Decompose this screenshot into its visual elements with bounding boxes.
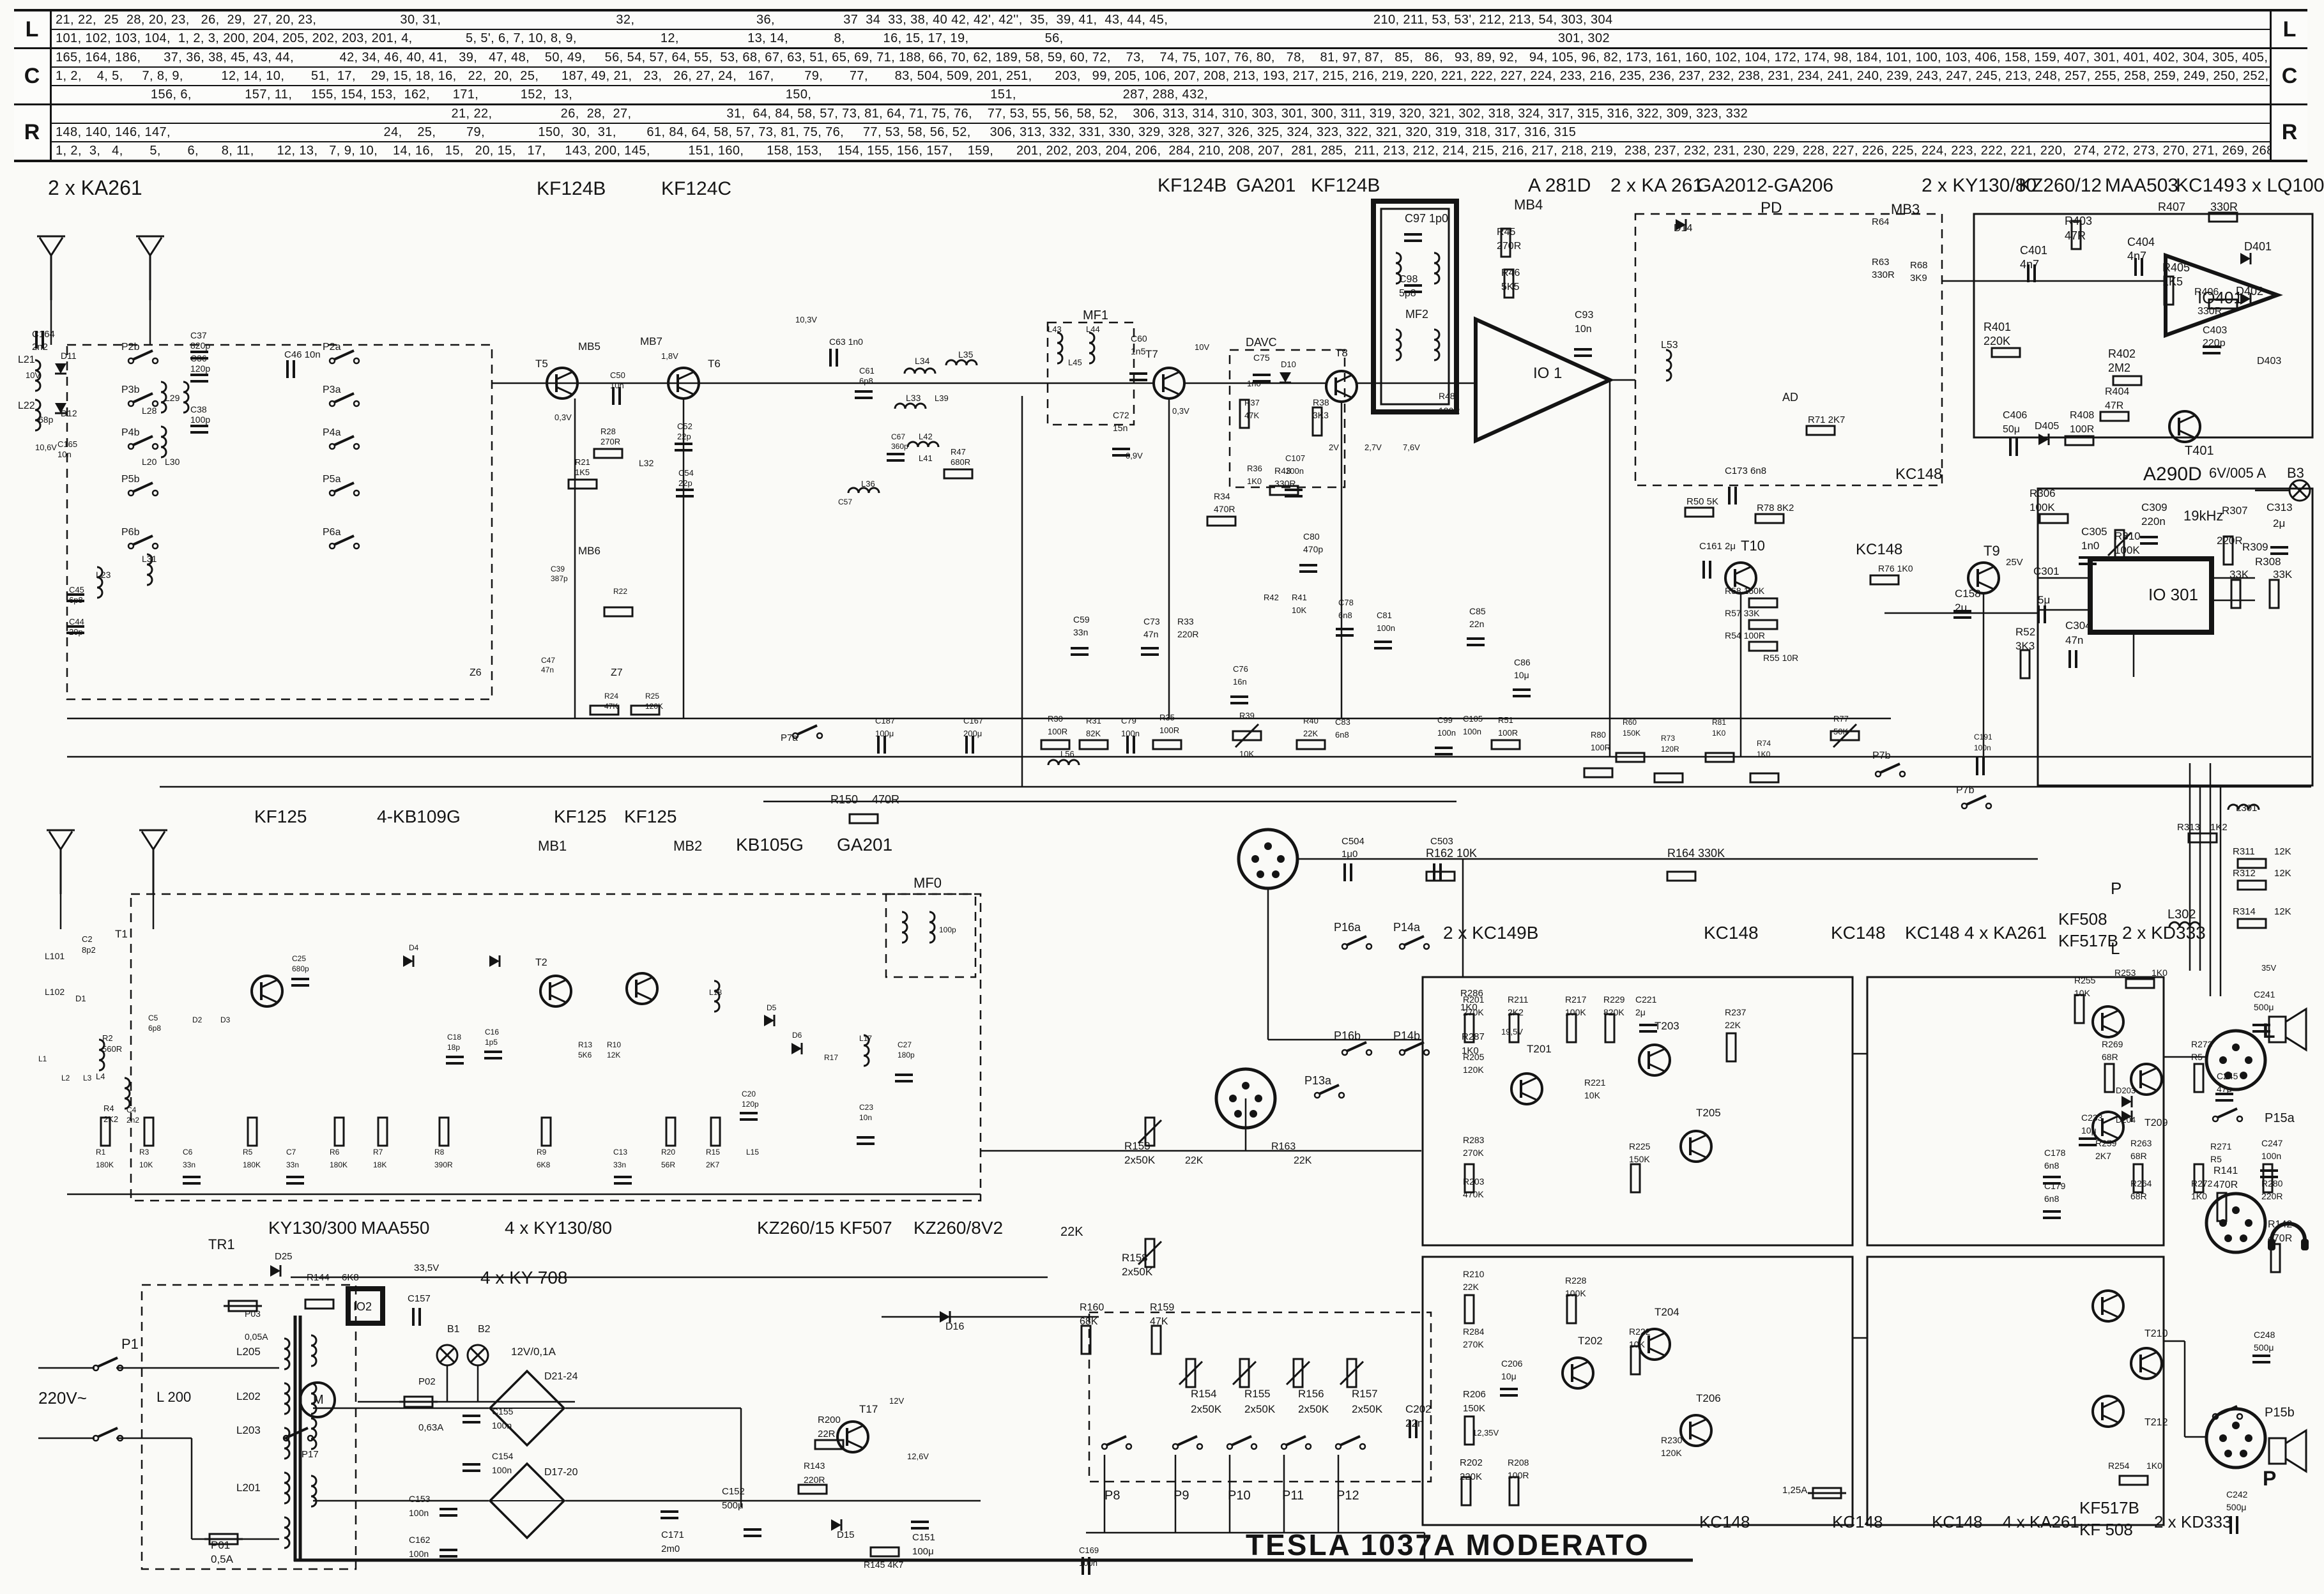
antenna-icon [61,831,72,849]
component-label: R255 [2074,975,2096,985]
component-label: L202 [236,1390,261,1402]
component-label: 100R [1159,725,1179,735]
component-label: 0,9V [1126,451,1143,460]
component-label: R205 [1463,1052,1485,1062]
component-label: C38 [190,404,207,414]
switch-lever [1232,1436,1251,1445]
component-label: 22R [818,1429,836,1439]
component-label: P15a [2265,1111,2295,1125]
component-label: R81 [1712,718,1726,727]
component-label: L1 [38,1054,47,1063]
component-label: 12K [2274,868,2291,879]
switch-lever [1347,936,1366,945]
component-label: 1K0 [1247,476,1262,486]
component-label: C301 [2033,565,2060,577]
component-label: 1μ0 [1342,849,1357,860]
transistor-collector [1649,1049,1665,1056]
component-label: L22 [18,400,35,411]
component-label: P01 [211,1539,230,1551]
component-label: C167 [963,716,983,725]
component-label: R313 [2177,822,2200,833]
component-label: 220n [2141,515,2166,528]
transistor-collector [1978,566,1994,574]
component-label: C20 [742,1089,756,1098]
component-label: KF124C [661,178,731,199]
switch-contact [1360,1444,1365,1449]
component-label: 10μ [1501,1371,1517,1381]
strip-group-C: C165, 164, 186, 37, 36, 38, 45, 43, 44, … [14,47,2307,103]
transistor-collector [2102,1010,2119,1018]
component-label: KC148 [1704,923,1759,943]
component-label: 10,6V [35,443,57,452]
component-label: R156 [1298,1388,1324,1400]
component-label: L3 [83,1074,92,1082]
strip-number-line: 148, 140, 146, 147, 24, 25, 79, 150, 30,… [52,123,2270,141]
transistor-collector [2141,1352,2157,1360]
component-label: C79 [1121,716,1136,725]
switch-lever [1177,1436,1197,1445]
din-socket [2206,1194,2265,1252]
transistor-emitter [2102,1026,2119,1033]
component-label: 100R [2070,424,2094,435]
component-label: MB6 [578,545,600,557]
component-label: 330R [2210,201,2238,213]
component-label: 10n [1575,324,1592,335]
component-label: C157 [408,1293,431,1304]
component-label: L53 [1661,340,1678,351]
component-label: L203 [236,1424,261,1436]
resistor-symbol [1750,773,1778,782]
din-socket-pin [2240,1234,2247,1242]
component-label: D16 [945,1321,964,1332]
component-label: KF125 [554,807,607,826]
component-label: L101 [45,951,65,961]
resistor-symbol [305,1300,333,1309]
component-label: 50μ [2003,424,2020,435]
transistor-collector [1690,1135,1707,1142]
component-label: C247 [2261,1138,2283,1148]
antenna-icon [150,238,162,255]
component-label: L201 [236,1482,261,1494]
diode-symbol [2038,434,2049,445]
component-label: R201 [1463,994,1485,1005]
resistor-symbol [944,469,972,478]
component-label: C6 [183,1148,193,1157]
strip-lines: 165, 164, 186, 37, 36, 38, 45, 43, 44, 4… [52,49,2270,103]
component-label: R77 [1833,714,1849,724]
component-label: 100p [190,414,210,425]
component-label: 100n [492,1465,512,1475]
component-label: R208 [1508,1457,1529,1468]
component-label: R51 [1498,715,1513,725]
component-label: 100K [1565,1288,1586,1298]
component-label: 200μ [963,729,982,738]
component-label: P2b [121,342,140,353]
resistor-symbol [1807,426,1835,435]
component-label: 1K0 [1712,729,1726,738]
component-label: 22K [1294,1155,1312,1166]
module-outline-dashed [1048,323,1134,425]
potentiometer-arrow [1233,1362,1256,1385]
component-label: 22K [1303,729,1318,738]
diode-symbol [764,1015,774,1026]
component-label: L302 [2167,907,2196,922]
component-label: P6a [323,527,341,538]
switch-lever [1340,1436,1360,1445]
component-label: C248 [2254,1330,2275,1340]
resistor-symbol [144,1118,153,1146]
component-label: 12V [889,1396,904,1406]
component-label: 6V/005 A [2209,465,2267,481]
component-label: 270K [1463,1148,1484,1158]
component-label: L36 [861,479,875,489]
component-label: 22n [1405,1417,1423,1429]
component-label: 100n [1079,1558,1097,1568]
component-label: T201 [1527,1043,1552,1055]
resistor-symbol [569,480,597,489]
component-label: MF2 [1405,308,1428,321]
component-label: 150K [1623,729,1640,738]
resistor-symbol [1297,740,1325,749]
component-label: L 200 [157,1389,191,1405]
component-label: 100K [2030,501,2055,513]
component-label: C97 1p0 [1405,212,1448,225]
component-label: P11 [1282,1489,1304,1503]
resistor-symbol [2105,1064,2114,1092]
component-label: 560R [102,1044,122,1054]
component-label: AD [1782,391,1798,404]
switch-contact [1339,1093,1344,1098]
component-label: C162 [409,1535,431,1545]
component-label: MB5 [578,340,600,353]
component-label: C233 [2081,1112,2103,1123]
component-label: C401 [2020,244,2047,257]
diode-symbol [489,955,500,967]
component-label: 220K [1984,335,2010,347]
component-label: D1 [75,994,86,1003]
component-label: 150K [1629,1154,1650,1164]
transistor-collector [1572,1362,1589,1369]
component-label: C83 [1335,717,1350,727]
component-label: 8p2 [82,945,96,955]
component-label: 100n [409,1508,429,1518]
component-label: R141 [2213,1165,2238,1176]
strip-letter-L: L [14,11,52,47]
inductor-symbol [946,360,977,365]
component-label: 68p [38,414,54,425]
component-label: R225 [1629,1141,1651,1151]
transistor-emitter [2102,1310,2119,1317]
component-label: C187 [875,716,895,725]
switch-lever [1404,1042,1424,1051]
component-label: D403 [2257,356,2281,367]
component-label: KF124B [1311,175,1380,196]
component-label: R237 [1725,1007,1747,1017]
component-label: 12K [2274,846,2291,857]
component-label: C81 [1377,611,1392,620]
component-label: 360p [891,442,908,451]
component-label: 0,3V [554,413,572,422]
component-label: 22K [1185,1155,1204,1166]
component-label: C80 [1303,531,1320,542]
component-label: R24 [604,692,618,701]
component-label: KB105G [736,835,804,854]
component-label: C39 [551,565,565,573]
component-label: C107 [1285,453,1305,463]
component-label: 3K3 [1313,410,1329,420]
component-label: 100R [1498,728,1518,738]
transistor-collector [1163,372,1180,379]
component-label: 2M2 [2108,361,2130,374]
component-label: 180K [330,1160,348,1169]
component-label: R150 [830,793,858,806]
switch-contact [2237,1116,2242,1121]
component-label: R308 [2255,556,2281,568]
component-label: C304 [2065,619,2091,632]
component-label: B1 [447,1324,460,1335]
strip-number-line: 21, 22, 26, 28, 27, 31, 64, 84, 58, 57, … [52,105,2270,123]
component-label: L33 [906,393,921,403]
component-label: R202 [1460,1457,1483,1468]
component-label: R34 [1214,491,1230,501]
component-label: P14b [1393,1029,1420,1042]
component-label: 2,7V [1365,443,1382,452]
component-label: R221 [1584,1077,1606,1088]
component-label: Z7 [611,667,623,678]
component-label: L32 [639,458,654,468]
transistor-collector [556,372,573,379]
component-label: 220R [804,1475,825,1485]
component-label: 19kHz [2183,508,2223,524]
component-label: 680p [292,964,309,973]
strip-letter-R: R [14,105,52,160]
switch-lever [98,1358,118,1367]
strip-number-line: 1, 2, 4, 5, 7, 8, 9, 12, 14, 10, 51, 17,… [52,66,2270,85]
component-label: 100n [1463,727,1481,736]
component-label: 10,3V [795,315,817,324]
component-label: C158 [1955,588,1981,600]
component-label: T205 [1696,1107,1721,1119]
component-label: 33n [286,1160,299,1169]
module-outline-dashed [67,345,492,699]
transistor-emitter [678,387,694,395]
component-label: 4 x KA261 [2003,1512,2079,1531]
component-label: 330R [1274,478,1296,489]
switch-contact [1424,944,1429,949]
component-label: 2 x KD333 [2122,923,2206,943]
component-label: T6 [708,358,721,370]
component-label: R160 [1080,1302,1104,1313]
component-label: R42 [1264,593,1279,602]
transistor-collector [261,980,278,987]
resistor-symbol [2100,412,2129,421]
component-label: R162 10K [1426,847,1477,860]
component-label: 2K7 [2095,1151,2111,1161]
component-label: C202 [1405,1403,1432,1415]
component-label: L17 [859,1034,872,1043]
component-label: 120p [742,1100,759,1109]
component-label: C60 [1131,333,1147,344]
component-label: 33K [2273,568,2293,581]
din-socket-pin [1251,855,1259,863]
switch-contact [1197,1444,1202,1449]
transistor-collector [2179,415,2196,423]
component-label: 500μ [2254,1342,2274,1353]
component-label: R311 [2233,846,2255,857]
component-label: P4a [323,427,341,438]
component-label: MB3 [1891,201,1920,217]
component-label: 2x50K [1298,1403,1329,1415]
transistor-emitter [261,995,278,1003]
component-label: KZ260/8V2 [914,1218,1003,1238]
component-label: MF0 [914,875,942,891]
component-label: MAA503 [2105,175,2178,196]
component-label: 22p [677,432,691,441]
component-label: 10n [859,1113,872,1122]
component-label: KF 508 [2079,1520,2133,1539]
component-label: R25 [645,692,659,701]
component-label: R159 [1150,1302,1174,1313]
component-label: D12 [61,408,77,418]
component-label: IO 1 [1533,365,1562,382]
component-label: C36 [190,353,207,363]
component-label: R21 [575,457,590,467]
component-label: 18K [373,1160,386,1169]
component-label: C155 [492,1406,514,1416]
component-label: R145 4K7 [864,1560,903,1570]
potentiometer-arrow [1340,1362,1363,1385]
strip-number-line: 165, 164, 186, 37, 36, 38, 45, 43, 44, 4… [52,49,2270,66]
switch-contact [1424,1050,1429,1055]
component-label: P7a [781,732,798,743]
component-label: R310 [2114,530,2141,542]
headphones-symbol [2301,1239,2309,1250]
resistor-symbol [542,1118,551,1146]
component-label: R259 [2095,1138,2117,1148]
component-label: 4-KB109G [377,807,461,826]
component-label: C18 [447,1033,461,1042]
component-label: D204 [2116,1115,2136,1125]
component-label: D402 [2236,285,2263,298]
component-label: C67 [891,432,905,441]
component-label: L301 [2236,803,2257,814]
component-label: KF508 [2058,909,2107,929]
component-label: 33,5V [414,1263,439,1273]
component-label: L2 [61,1074,70,1082]
component-label: C37 [190,330,207,340]
transistor-collector [550,980,567,987]
component-label: 100n [409,1549,429,1559]
din-socket-pin [2240,1450,2247,1457]
component-label: 25V [2006,557,2023,568]
diode-symbol [2240,253,2251,264]
component-label: L102 [45,987,65,997]
component-label: R37 [1244,398,1260,407]
resistor-symbol [2113,376,2141,385]
din-socket-pin [1234,1110,1242,1118]
component-label: T7 [1145,348,1158,360]
component-label: R40 [1303,716,1319,725]
transistor-emitter [1163,387,1180,395]
component-label: 100n [1974,743,1991,752]
component-label: R158 [1122,1252,1148,1264]
din-socket-pin [1277,855,1285,863]
component-label: GA201 [1697,175,1756,196]
strip-number-line: 21, 22, 25 28, 20, 23, 26, 29, 27, 20, 2… [52,11,2270,29]
component-label: 5μ [2038,594,2050,606]
component-label: 12K [607,1051,620,1059]
component-label: R78 8K2 [1757,503,1794,513]
component-label: R407 [2158,201,2185,213]
component-label: C406 [2003,410,2027,421]
component-label: 120K [1661,1448,1682,1458]
inductor-symbol [311,1418,316,1449]
component-label: C5 [148,1013,158,1022]
component-label: R228 [1565,1275,1587,1286]
component-label: Z6 [470,667,482,678]
diode-symbol [403,955,413,967]
din-socket-pin [2224,1450,2232,1457]
inductor-symbol [1396,330,1401,360]
inductor-symbol [311,1335,316,1366]
component-label: T203 [1655,1020,1679,1032]
inductor-symbol [905,368,935,374]
component-label: D6 [792,1031,802,1040]
component-label: M [313,1393,324,1407]
component-label: R46 [1501,268,1520,278]
module-outline [1423,977,1853,1245]
component-label: 220V~ [38,1388,87,1408]
strip-lines: 21, 22, 26, 28, 27, 31, 64, 84, 58, 57, … [52,105,2270,160]
component-label: KY130/300 [268,1218,357,1238]
component-label: 330R [2198,306,2222,317]
schematic-canvas: 2 x KA261KF124BKF124CKF124BGA201KF124BA … [0,0,2324,1594]
resistor-symbol [1749,620,1777,629]
component-label: 220R [1177,629,1198,639]
component-label: R406 [2194,287,2219,298]
component-label: 12,35V [1472,1428,1499,1438]
diode-symbol [1280,372,1291,383]
component-label: D21-24 [544,1371,578,1382]
component-label: R163 [1271,1141,1296,1152]
component-label: L15 [746,1148,759,1157]
switch-contact [1900,771,1905,777]
transistor-collector [2141,1068,2157,1075]
switch-contact [1366,944,1372,949]
resistor-symbol [2270,580,2279,608]
component-label: 150K [1463,1403,1485,1414]
component-label: 47n [541,665,554,674]
component-label: C45 [69,585,84,595]
component-label: 6K8 [342,1272,359,1283]
component-label: P8 [1105,1489,1120,1503]
component-label: C4 [126,1105,137,1114]
component-label: L [2263,1019,2275,1042]
component-label: C27 [898,1040,912,1049]
component-label: R33 [1177,616,1194,626]
component-label: 100n [492,1420,512,1431]
component-label: R280 [2261,1178,2283,1188]
strip-number-line: 101, 102, 103, 104, 1, 2, 3, 200, 204, 2… [52,29,2270,47]
component-label: 2 x KA261 [48,176,142,199]
component-label: 100n [1377,623,1395,633]
strip-letter-C: C [2270,49,2307,103]
transistor-collector [2102,1400,2119,1408]
component-label: C173 6n8 [1725,466,1766,476]
switch-contact [153,490,158,496]
component-label: 18p [447,1043,460,1052]
inductor-symbol [1089,333,1094,363]
